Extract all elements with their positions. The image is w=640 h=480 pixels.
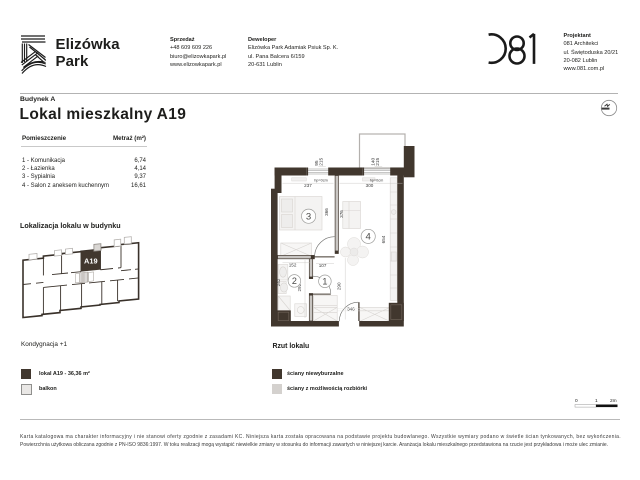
svg-text:242: 242 [276, 278, 281, 286]
svg-text:376: 376 [339, 210, 344, 218]
svg-text:4: 4 [366, 232, 372, 243]
svg-text:237: 237 [304, 183, 312, 188]
svg-text:3: 3 [306, 211, 311, 222]
svg-text:152: 152 [289, 263, 297, 268]
svg-text:290: 290 [336, 282, 341, 290]
svg-text:215: 215 [318, 157, 324, 165]
svg-text:215: 215 [375, 157, 381, 165]
svg-text:107: 107 [319, 263, 327, 268]
svg-text:366: 366 [324, 208, 329, 216]
svg-text:hp=0cm: hp=0cm [314, 178, 328, 182]
svg-text:1: 1 [322, 276, 327, 286]
svg-text:300: 300 [366, 183, 374, 188]
svg-text:2: 2 [292, 276, 297, 286]
svg-text:654: 654 [381, 235, 386, 243]
svg-text:hp=0cm: hp=0cm [370, 178, 384, 182]
